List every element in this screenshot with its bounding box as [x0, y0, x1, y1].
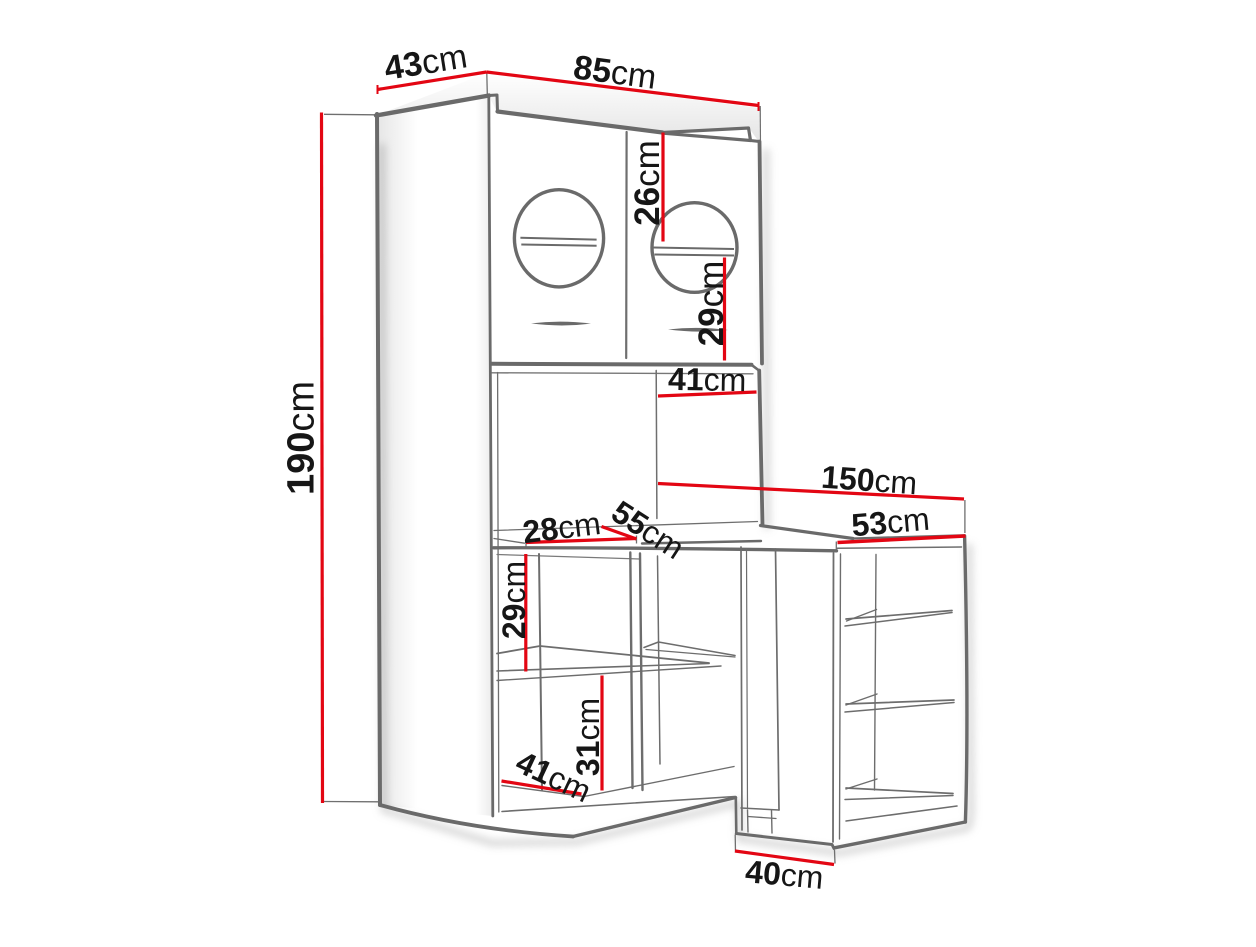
- svg-text:29cm: 29cm: [692, 261, 731, 347]
- svg-text:53cm: 53cm: [850, 501, 931, 544]
- svg-text:31cm: 31cm: [570, 698, 606, 776]
- svg-text:150cm: 150cm: [820, 459, 918, 502]
- svg-text:190cm: 190cm: [281, 381, 323, 495]
- svg-text:26cm: 26cm: [628, 140, 667, 226]
- svg-text:41cm: 41cm: [668, 361, 747, 398]
- svg-text:40cm: 40cm: [744, 853, 825, 896]
- svg-text:29cm: 29cm: [496, 561, 532, 639]
